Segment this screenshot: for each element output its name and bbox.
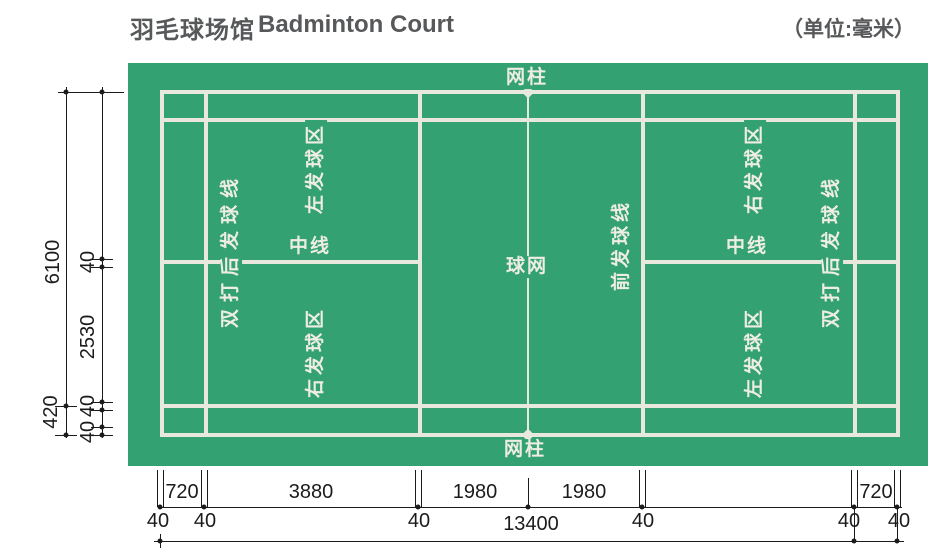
unit-note: （单位:毫米） (782, 13, 915, 43)
dim-dot (64, 433, 69, 438)
service-box-top-left-label: 左发球区 (305, 120, 327, 216)
dim-dot (100, 425, 105, 430)
center-line-left-label: 中线 (287, 236, 333, 258)
dim-tick (415, 470, 416, 507)
dim-line-left-inner (102, 87, 103, 438)
dim-singles-line-width-40: 40 (78, 395, 98, 417)
center-line-right-segment (641, 260, 900, 264)
dim-line-width-40: 40 (838, 511, 860, 531)
dim-doubles-line-width-40: 40 (78, 421, 98, 443)
service-box-bottom-left-label: 右发球区 (305, 304, 327, 400)
dim-back-alley-right-720: 720 (859, 482, 892, 502)
doubles-long-service-right-label: 双打后发球线 (821, 170, 843, 330)
dim-tick (894, 470, 895, 507)
center-line-right-label: 中线 (724, 236, 770, 258)
dim-dot (64, 404, 69, 409)
back-boundary-line-right (896, 90, 900, 437)
center-line-left-segment (160, 260, 422, 264)
dim-tick (645, 470, 646, 507)
badminton-court-diagram: 羽毛球场馆 Badminton Court （单位:毫米） 网柱 网柱 球网 中… (0, 0, 947, 555)
dim-dot (895, 505, 900, 510)
short-service-line-left (418, 90, 422, 437)
net-label: 球网 (504, 256, 550, 278)
page-title-chinese: 羽毛球场馆 (130, 10, 255, 45)
page-title-english: Badminton Court (258, 11, 454, 39)
dim-dot (202, 505, 207, 510)
dim-dot (100, 257, 105, 262)
dim-tick (857, 470, 858, 507)
doubles-long-service-line-right (853, 90, 857, 437)
singles-sideline-bottom (160, 404, 900, 408)
dim-front-court-right-1980: 1980 (562, 482, 607, 502)
dim-half-width-2530: 2530 (78, 315, 98, 360)
dim-line-width-40: 40 (888, 511, 910, 531)
doubles-long-service-line-left (204, 90, 208, 437)
dim-side-alley-420: 420 (41, 395, 61, 428)
dim-line-width-40: 40 (632, 511, 654, 531)
dim-court-width-6100: 6100 (43, 240, 63, 285)
dim-line-width-40: 40 (194, 511, 216, 531)
dim-line-bottom-lower (154, 541, 904, 542)
dim-dot (158, 505, 163, 510)
dim-tick (157, 470, 158, 507)
dim-dot (100, 265, 105, 270)
dim-tick (163, 470, 164, 507)
net-post-top-label: 网柱 (504, 67, 550, 89)
dim-tick (421, 470, 422, 507)
doubles-long-service-left-label: 双打后发球线 (220, 170, 242, 330)
dim-dot (416, 505, 421, 510)
dim-line-width-40: 40 (408, 511, 430, 531)
dim-dot (100, 400, 105, 405)
dim-back-alley-left-720: 720 (165, 482, 198, 502)
back-boundary-line-left (160, 90, 164, 437)
dim-tick (639, 470, 640, 507)
dim-dot (100, 408, 105, 413)
dim-front-court-left-1980: 1980 (453, 482, 498, 502)
dim-tick (900, 470, 901, 507)
dim-tick (528, 478, 529, 507)
service-box-top-right-label: 右发球区 (744, 120, 766, 216)
front-service-line-label: 前发球线 (611, 197, 633, 293)
dim-dot (100, 433, 105, 438)
dim-dot (852, 539, 857, 544)
dim-dot (526, 505, 531, 510)
dim-tick (207, 470, 208, 507)
dim-court-length-13400: 13400 (503, 514, 559, 534)
short-service-line-right (641, 90, 645, 437)
dim-dot (852, 505, 857, 510)
dim-dot (640, 505, 645, 510)
net-post-bottom-label: 网柱 (502, 439, 548, 461)
dim-dot (895, 539, 900, 544)
dim-dot (158, 539, 163, 544)
dim-dot (64, 90, 69, 95)
dim-center-line-width-40: 40 (78, 251, 98, 273)
court-surface: 网柱 网柱 球网 中线 中线 前发球线 左发球区 右发球区 右发球区 左发球区 … (128, 63, 928, 466)
dim-tick (201, 470, 202, 507)
dim-rear-court-left-3880: 3880 (289, 482, 334, 502)
dim-tick (851, 470, 852, 507)
dim-dot (100, 90, 105, 95)
dim-line-width-40: 40 (147, 511, 169, 531)
service-box-bottom-right-label: 左发球区 (744, 304, 766, 400)
dim-line-left-outer (66, 87, 67, 438)
singles-sideline-top (160, 118, 900, 122)
